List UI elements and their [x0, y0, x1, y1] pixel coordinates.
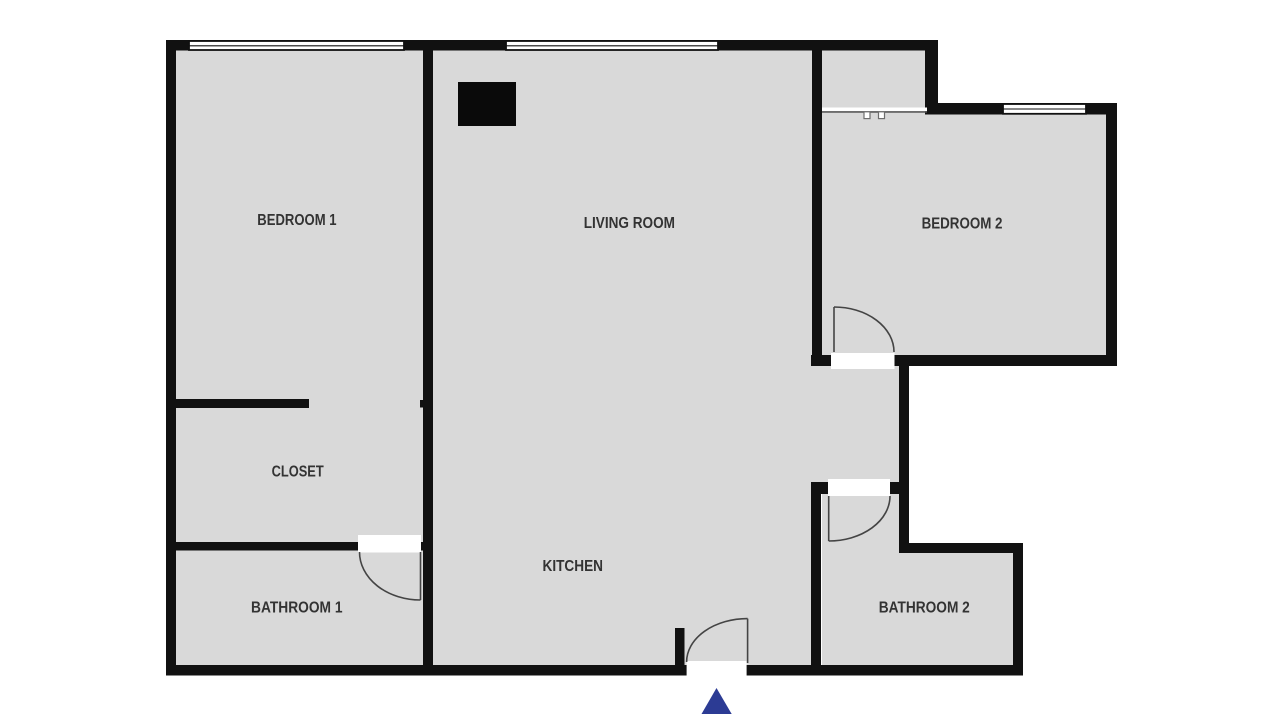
svg-text:BEDROOM 2: BEDROOM 2	[922, 215, 1003, 232]
svg-text:BATHROOM 1: BATHROOM 1	[251, 600, 343, 617]
svg-text:CLOSET: CLOSET	[272, 463, 325, 480]
svg-text:BEDROOM 1: BEDROOM 1	[257, 212, 337, 229]
svg-text:LIVING ROOM: LIVING ROOM	[584, 215, 675, 232]
svg-text:KITCHEN: KITCHEN	[543, 558, 604, 575]
svg-text:BATHROOM 2: BATHROOM 2	[879, 600, 970, 617]
